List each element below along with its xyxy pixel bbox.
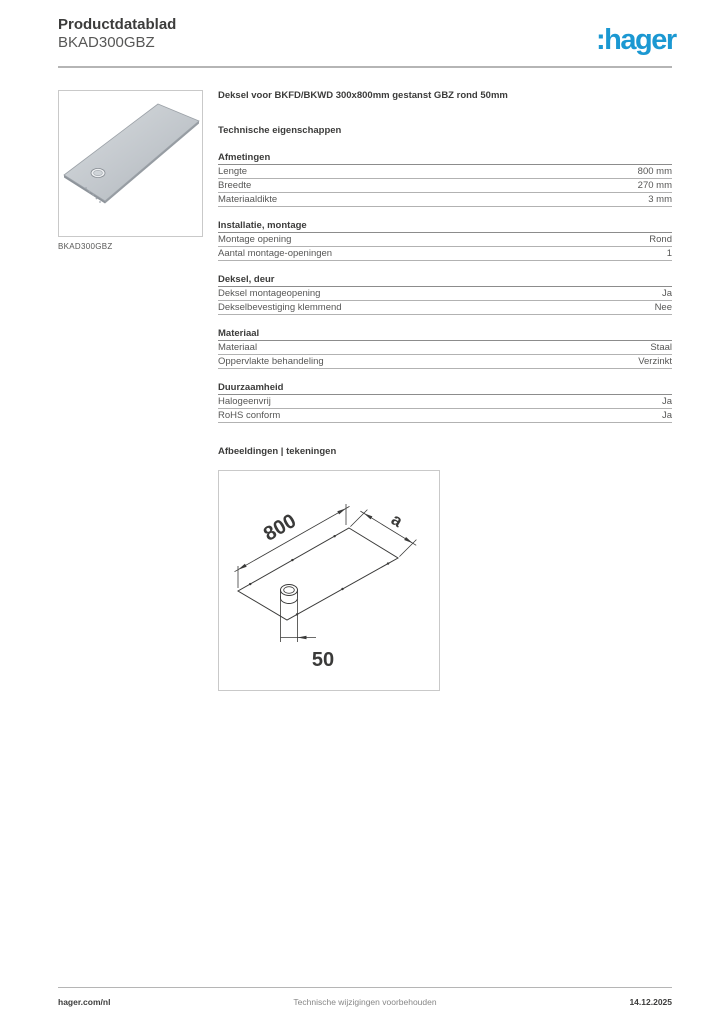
row-label: Breedte — [218, 180, 251, 191]
footer-disclaimer: Technische wijzigingen voorbehouden — [58, 997, 672, 1007]
product-datasheet-page: Productdatablad BKAD300GBZ :hager — [0, 0, 724, 1024]
row-label: Lengte — [218, 166, 247, 177]
spec-section-installatie: Installatie, montage Montage opening Ron… — [218, 219, 672, 261]
row-value: Ja — [662, 410, 672, 421]
product-image-frame — [58, 90, 203, 237]
product-title: Deksel voor BKFD/BKWD 300x800mm gestanst… — [218, 90, 672, 101]
product-image-caption: BKAD300GBZ — [58, 242, 113, 251]
spec-sections: Afmetingen Lengte 800 mm Breedte 270 mm … — [218, 151, 672, 423]
row-label: Oppervlakte behandeling — [218, 356, 324, 367]
section-heading: Materiaal — [218, 327, 672, 341]
drawings-heading: Afbeeldingen | tekeningen — [218, 446, 336, 457]
product-code-header: BKAD300GBZ — [58, 34, 155, 51]
technical-drawing: 800 a 50 — [219, 471, 437, 688]
spec-section-deksel: Deksel, deur Deksel montageopening Ja De… — [218, 273, 672, 315]
footer-date: 14.12.2025 — [629, 997, 672, 1007]
technical-drawing-frame: 800 a 50 — [218, 470, 440, 691]
plate-outline — [238, 528, 398, 620]
spec-section-afmetingen: Afmetingen Lengte 800 mm Breedte 270 mm … — [218, 151, 672, 207]
footer-divider — [58, 987, 672, 988]
row-label: Halogeenvrij — [218, 396, 271, 407]
table-row: Aantal montage-openingen 1 — [218, 247, 672, 261]
row-label: Materiaaldikte — [218, 194, 277, 205]
header-divider — [58, 66, 672, 68]
section-heading: Duurzaamheid — [218, 381, 672, 395]
table-row: Montage opening Rond — [218, 233, 672, 247]
spec-section-duurzaamheid: Duurzaamheid Halogeenvrij Ja RoHS confor… — [218, 381, 672, 423]
row-value: 3 mm — [648, 194, 672, 205]
section-heading: Deksel, deur — [218, 273, 672, 287]
technical-properties-heading: Technische eigenschappen — [218, 125, 341, 136]
row-value: Nee — [655, 302, 672, 313]
table-row: Oppervlakte behandeling Verzinkt — [218, 355, 672, 369]
row-label: RoHS conform — [218, 410, 280, 421]
table-row: Lengte 800 mm — [218, 165, 672, 179]
table-row: Halogeenvrij Ja — [218, 395, 672, 409]
row-value: 1 — [667, 248, 672, 259]
section-heading: Afmetingen — [218, 151, 672, 165]
row-value: Rond — [649, 234, 672, 245]
dim-hole-arrow — [298, 636, 307, 639]
table-row: RoHS conform Ja — [218, 409, 672, 423]
table-row: Materiaal Staal — [218, 341, 672, 355]
dimension-label-a: a — [388, 510, 407, 531]
row-value: Ja — [662, 288, 672, 299]
plate-hole-inner — [94, 170, 103, 175]
table-row: Dekselbevestiging klemmend Nee — [218, 301, 672, 315]
dimension-label-800: 800 — [260, 510, 300, 546]
document-type-title: Productdatablad — [58, 16, 176, 33]
steel-plate — [64, 104, 199, 201]
row-label: Deksel montageopening — [218, 288, 320, 299]
row-label: Aantal montage-openingen — [218, 248, 332, 259]
row-label: Montage opening — [218, 234, 291, 245]
row-label: Materiaal — [218, 342, 257, 353]
table-row: Materiaaldikte 3 mm — [218, 193, 672, 207]
table-row: Deksel montageopening Ja — [218, 287, 672, 301]
spec-section-materiaal: Materiaal Materiaal Staal Oppervlakte be… — [218, 327, 672, 369]
row-value: Staal — [650, 342, 672, 353]
hager-logo: :hager — [596, 27, 686, 53]
row-value: 800 mm — [638, 166, 672, 177]
row-label: Dekselbevestiging klemmend — [218, 302, 342, 313]
row-value: 270 mm — [638, 180, 672, 191]
section-heading: Installatie, montage — [218, 219, 672, 233]
table-row: Breedte 270 mm — [218, 179, 672, 193]
row-value: Ja — [662, 396, 672, 407]
row-value: Verzinkt — [638, 356, 672, 367]
dimension-label-50: 50 — [312, 649, 334, 671]
product-photo — [59, 91, 202, 236]
footer-website: hager.com/nl — [58, 997, 110, 1007]
